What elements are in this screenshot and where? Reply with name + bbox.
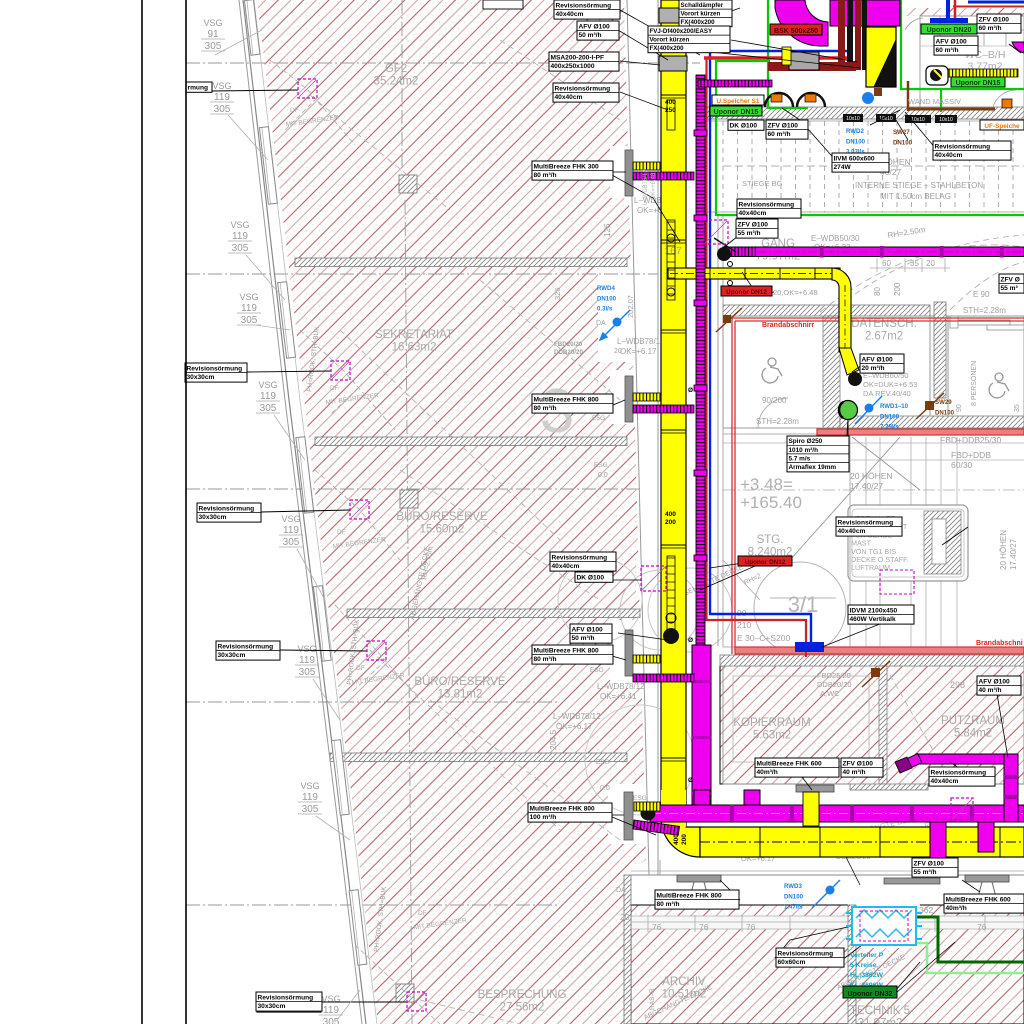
svg-text:DF: DF bbox=[356, 665, 365, 672]
svg-text:30x30cm: 30x30cm bbox=[218, 652, 246, 659]
svg-text:VSG: VSG bbox=[212, 81, 231, 91]
svg-text:119: 119 bbox=[260, 391, 276, 402]
svg-text:AFV Ø100: AFV Ø100 bbox=[936, 38, 967, 45]
svg-text:ESG: ESG bbox=[596, 759, 610, 766]
svg-text:80: 80 bbox=[873, 287, 882, 296]
svg-text:DA REV.40/40: DA REV.40/40 bbox=[863, 389, 911, 398]
svg-text:80 m³/h: 80 m³/h bbox=[534, 656, 557, 663]
svg-text:VSG: VSG bbox=[321, 994, 340, 1004]
svg-text:MIT 1.50cm BELAG: MIT 1.50cm BELAG bbox=[880, 192, 951, 201]
svg-text:MSA200-200-I-PF: MSA200-200-I-PF bbox=[551, 54, 605, 61]
svg-text:MultiBreeze FHK 600: MultiBreeze FHK 600 bbox=[946, 896, 1012, 903]
svg-text:OK=+6.17: OK=+6.17 bbox=[556, 722, 593, 731]
svg-text:305: 305 bbox=[232, 243, 249, 254]
svg-text:40x40cm: 40x40cm bbox=[931, 778, 959, 785]
svg-text:BSK 500x250: BSK 500x250 bbox=[774, 28, 818, 35]
svg-text:100 m³/h: 100 m³/h bbox=[530, 814, 557, 821]
svg-text:13.81m2: 13.81m2 bbox=[438, 689, 483, 701]
svg-text:ZFV Ø100: ZFV Ø100 bbox=[914, 860, 945, 867]
svg-text:DA: DA bbox=[596, 320, 606, 327]
svg-text:MultiBreeze FHK 800: MultiBreeze FHK 800 bbox=[530, 805, 596, 812]
svg-text:0.0: 0.0 bbox=[598, 472, 608, 479]
svg-text:VSG: VSG bbox=[258, 380, 277, 390]
svg-text:204.5: 204.5 bbox=[549, 729, 558, 750]
svg-text:+3.48=: +3.48= bbox=[740, 475, 793, 494]
svg-text:Revisionsörmung: Revisionsörmung bbox=[556, 2, 612, 9]
svg-text:Uponor DN15: Uponor DN15 bbox=[956, 80, 1001, 87]
svg-text:Revisionsörmung: Revisionsörmung bbox=[552, 554, 608, 561]
svg-text:STG.: STG. bbox=[757, 534, 784, 546]
svg-text:RWD2: RWD2 bbox=[846, 128, 864, 135]
svg-text:L–WDB78/12: L–WDB78/12 bbox=[617, 337, 665, 346]
svg-text:20 m³/h: 20 m³/h bbox=[862, 365, 885, 372]
svg-text:55 m³/h: 55 m³/h bbox=[738, 230, 761, 237]
svg-text:305: 305 bbox=[214, 104, 231, 115]
svg-text:60x60cm: 60x60cm bbox=[778, 959, 806, 966]
svg-text:20 HÖHEN: 20 HÖHEN bbox=[850, 471, 893, 481]
svg-text:ESG: ESG bbox=[590, 667, 604, 674]
svg-text:OK=+6.48: OK=+6.48 bbox=[651, 172, 657, 200]
svg-text:119: 119 bbox=[323, 1005, 339, 1016]
svg-text:305: 305 bbox=[283, 537, 300, 548]
svg-text:305: 305 bbox=[299, 667, 316, 678]
svg-text:VSG: VSG bbox=[300, 781, 319, 791]
svg-text:ARCHIV: ARCHIV bbox=[662, 976, 706, 988]
svg-text:35: 35 bbox=[910, 259, 919, 268]
svg-text:Uponor DN12: Uponor DN12 bbox=[745, 559, 786, 566]
svg-text:91: 91 bbox=[207, 29, 219, 40]
svg-text:60 m³/h: 60 m³/h bbox=[768, 131, 791, 138]
svg-text:60: 60 bbox=[882, 259, 891, 268]
svg-text:A,WC: A,WC bbox=[820, 689, 840, 698]
svg-text:119: 119 bbox=[283, 525, 299, 536]
svg-text:Vorort kürzen: Vorort kürzen bbox=[650, 36, 690, 43]
svg-text:119: 119 bbox=[302, 792, 318, 803]
svg-text:L–WDB76/12: L–WDB76/12 bbox=[643, 169, 649, 205]
svg-text:FVJ-Df400x200/EASY: FVJ-Df400x200/EASY bbox=[650, 28, 713, 35]
svg-text:RWD3: RWD3 bbox=[784, 883, 802, 890]
svg-text:80 m³/h: 80 m³/h bbox=[657, 901, 680, 908]
svg-text:E–WDB50/30: E–WDB50/30 bbox=[811, 234, 860, 243]
svg-text:274W: 274W bbox=[834, 164, 852, 171]
svg-text:305: 305 bbox=[260, 403, 277, 414]
svg-text:DF: DF bbox=[290, 107, 299, 114]
svg-text:STIEGE BG: STIEGE BG bbox=[742, 179, 783, 188]
svg-text:119: 119 bbox=[299, 655, 315, 666]
svg-text:DK Ø100: DK Ø100 bbox=[577, 574, 605, 581]
svg-text:FX(400x200: FX(400x200 bbox=[681, 19, 716, 26]
svg-text:55 m³/h: 55 m³/h bbox=[914, 869, 937, 876]
svg-text:STH=2.28m: STH=2.28m bbox=[756, 417, 799, 426]
svg-text:DN100: DN100 bbox=[893, 139, 913, 146]
svg-text:Revisionsörmung: Revisionsörmung bbox=[199, 505, 255, 512]
svg-text:298: 298 bbox=[950, 680, 965, 690]
svg-text:40x40cm: 40x40cm bbox=[556, 11, 584, 18]
svg-text:90: 90 bbox=[956, 404, 963, 412]
svg-text:35.24m2: 35.24m2 bbox=[374, 76, 419, 88]
svg-text:Revisionsörmung: Revisionsörmung bbox=[778, 950, 834, 957]
svg-text:SW29: SW29 bbox=[935, 399, 952, 406]
svg-text:Verteiler P: Verteiler P bbox=[850, 952, 884, 959]
svg-text:Uponor DN15: Uponor DN15 bbox=[714, 109, 759, 116]
svg-text:DN100: DN100 bbox=[597, 295, 617, 302]
svg-text:40x40cm: 40x40cm bbox=[739, 210, 767, 217]
svg-text:RAS–R: RAS–R bbox=[649, 988, 656, 1010]
svg-text:LÜFTRAUM: LÜFTRAUM bbox=[851, 563, 890, 572]
svg-text:55 m³: 55 m³ bbox=[1001, 285, 1019, 292]
svg-text:DATENSCH.: DATENSCH. bbox=[851, 318, 917, 330]
svg-text:DF: DF bbox=[330, 385, 339, 392]
svg-text:10x10: 10x10 bbox=[939, 117, 953, 123]
svg-text:210: 210 bbox=[737, 620, 751, 630]
svg-text:DF: DF bbox=[337, 529, 346, 536]
svg-text:Revisionsörmung: Revisionsörmung bbox=[218, 643, 274, 650]
svg-text:INTERNE STIEGE – STAHLBETON: INTERNE STIEGE – STAHLBETON bbox=[855, 181, 983, 190]
svg-text:ZFV Ø100: ZFV Ø100 bbox=[738, 221, 769, 228]
svg-text:IDVM 2100x450: IDVM 2100x450 bbox=[850, 607, 898, 614]
svg-text:20: 20 bbox=[926, 259, 935, 268]
svg-text:326: 326 bbox=[553, 287, 562, 300]
svg-text:DN100: DN100 bbox=[935, 409, 955, 416]
svg-text:DDB20/20: DDB20/20 bbox=[554, 349, 583, 356]
svg-text:400: 400 bbox=[665, 511, 676, 518]
svg-text:IIVM 600x600: IIVM 600x600 bbox=[834, 155, 875, 162]
svg-text:460W Vertikalk: 460W Vertikalk bbox=[850, 616, 897, 623]
svg-text:Revisionsörmung: Revisionsörmung bbox=[838, 519, 894, 526]
svg-text:OK=+6.41: OK=+6.41 bbox=[600, 692, 637, 701]
svg-text:VSG: VSG bbox=[281, 514, 300, 524]
svg-text:E 30–C+S200: E 30–C+S200 bbox=[737, 633, 790, 643]
svg-text:DN100: DN100 bbox=[784, 893, 804, 900]
svg-text:Uponor DN20: Uponor DN20 bbox=[927, 27, 972, 34]
svg-text:76: 76 bbox=[746, 922, 756, 932]
svg-text:HL:3862W: HL:3862W bbox=[850, 972, 883, 979]
svg-text:60 m³/h: 60 m³/h bbox=[979, 25, 1002, 32]
svg-text:AFV Ø100: AFV Ø100 bbox=[862, 356, 893, 363]
svg-text:rmung: rmung bbox=[188, 84, 209, 91]
svg-text:5 Kreise: 5 Kreise bbox=[850, 962, 877, 969]
svg-text:DDB20/20: DDB20/20 bbox=[817, 680, 852, 689]
svg-text:Revisionsörmung: Revisionsörmung bbox=[739, 201, 795, 208]
svg-text:0.3l/s: 0.3l/s bbox=[597, 306, 613, 313]
svg-text:Brandabschni: Brandabschni bbox=[976, 640, 1023, 647]
svg-text:80 m³/h: 80 m³/h bbox=[534, 172, 557, 179]
svg-text:DN100: DN100 bbox=[880, 413, 900, 420]
svg-text:305: 305 bbox=[323, 1017, 340, 1024]
svg-text:AFV Ø100: AFV Ø100 bbox=[572, 626, 603, 633]
svg-text:10x10: 10x10 bbox=[846, 116, 860, 122]
svg-text:Revisionsörmung: Revisionsörmung bbox=[555, 85, 611, 92]
svg-text:ZFV Ø100: ZFV Ø100 bbox=[979, 16, 1010, 23]
svg-text:305: 305 bbox=[302, 804, 319, 815]
svg-text:17.40/27: 17.40/27 bbox=[850, 481, 883, 491]
svg-text:40 m³/h: 40 m³/h bbox=[979, 687, 1002, 694]
svg-text:119: 119 bbox=[232, 231, 248, 242]
svg-text:TECHNIK 5: TECHNIK 5 bbox=[850, 1005, 910, 1017]
svg-text:17.40/27: 17.40/27 bbox=[1009, 538, 1018, 570]
svg-text:Uponor DN12: Uponor DN12 bbox=[726, 289, 767, 296]
svg-text:40x40cm: 40x40cm bbox=[838, 528, 866, 535]
svg-text:MultiBreeze FHK 800: MultiBreeze FHK 800 bbox=[534, 647, 600, 654]
svg-text:20,OK=+6.48: 20,OK=+6.48 bbox=[773, 288, 818, 297]
svg-text:KOPIERRAUM: KOPIERRAUM bbox=[733, 717, 810, 729]
svg-text:20: 20 bbox=[620, 912, 630, 922]
svg-text:STH=2.28m: STH=2.28m bbox=[963, 306, 1006, 315]
svg-text:UF-Speiche: UF-Speiche bbox=[984, 123, 1020, 130]
svg-text:E 90: E 90 bbox=[973, 290, 990, 299]
svg-text:DN100: DN100 bbox=[846, 138, 866, 145]
svg-text:30x30cm: 30x30cm bbox=[258, 1003, 286, 1010]
svg-text:35: 35 bbox=[1014, 404, 1021, 412]
svg-text:L–WDB78/12: L–WDB78/12 bbox=[553, 712, 601, 721]
svg-text:SW27: SW27 bbox=[893, 129, 910, 136]
svg-text:Revisionsörmung: Revisionsörmung bbox=[258, 994, 314, 1001]
svg-text:Revisionsörmung: Revisionsörmung bbox=[931, 769, 987, 776]
svg-text:119: 119 bbox=[214, 92, 230, 103]
svg-text:FBD20/20: FBD20/20 bbox=[554, 341, 583, 348]
svg-text:ESG: ESG bbox=[633, 795, 647, 802]
svg-text:60/30: 60/30 bbox=[951, 460, 973, 470]
svg-text:BESPRECHUNG: BESPRECHUNG bbox=[478, 989, 567, 1001]
svg-text:16.63m2: 16.63m2 bbox=[392, 342, 437, 354]
svg-text:2.67m2: 2.67m2 bbox=[865, 331, 903, 343]
svg-text:MultiBreeze FHK 800: MultiBreeze FHK 800 bbox=[534, 396, 600, 403]
svg-text:Revisionsörmung: Revisionsörmung bbox=[187, 365, 243, 372]
svg-text:90/200: 90/200 bbox=[762, 396, 787, 405]
svg-text:FBD25/20: FBD25/20 bbox=[817, 671, 851, 680]
svg-text:Brandabschnirr: Brandabschnirr bbox=[762, 322, 814, 329]
svg-text:BÜRO/RESERVE: BÜRO/RESERVE bbox=[396, 511, 488, 523]
svg-text:27.56m2: 27.56m2 bbox=[500, 1002, 545, 1014]
svg-text:OK=+6.17: OK=+6.17 bbox=[620, 347, 657, 356]
svg-text:5.63m2: 5.63m2 bbox=[753, 730, 791, 742]
svg-text:ESG: ESG bbox=[594, 462, 608, 469]
svg-text:20 HÖHEN: 20 HÖHEN bbox=[999, 530, 1008, 570]
svg-text:119: 119 bbox=[241, 303, 257, 314]
svg-text:MultiBreeze FHK 300: MultiBreeze FHK 300 bbox=[534, 163, 600, 170]
svg-text:MultiBreeze FHK 800: MultiBreeze FHK 800 bbox=[657, 892, 723, 899]
svg-text:PUTZRAUM: PUTZRAUM bbox=[941, 715, 1005, 727]
svg-text:VSG: VSG bbox=[203, 18, 222, 28]
svg-text:126: 126 bbox=[603, 223, 612, 237]
svg-text:40 m³/h: 40 m³/h bbox=[843, 769, 866, 776]
svg-text:RWD1–10: RWD1–10 bbox=[880, 403, 909, 410]
svg-text:50 m³/h: 50 m³/h bbox=[579, 32, 602, 39]
svg-text:7.29l/s: 7.29l/s bbox=[880, 424, 899, 431]
svg-text:VSG: VSG bbox=[239, 292, 258, 302]
svg-text:DF: DF bbox=[418, 910, 427, 917]
svg-text:ZFV Ø100: ZFV Ø100 bbox=[768, 122, 799, 129]
svg-text:400x250x1000: 400x250x1000 bbox=[551, 63, 595, 70]
svg-text:202.07: 202.07 bbox=[626, 295, 635, 318]
svg-text:305: 305 bbox=[241, 315, 258, 326]
svg-text:40x40cm: 40x40cm bbox=[555, 94, 583, 101]
svg-text:AFV Ø100: AFV Ø100 bbox=[979, 678, 1010, 685]
svg-text:76: 76 bbox=[699, 922, 709, 932]
svg-text:20: 20 bbox=[614, 348, 622, 355]
svg-text:200: 200 bbox=[681, 834, 688, 845]
svg-text:40m³/h: 40m³/h bbox=[757, 769, 778, 776]
svg-text:Spiro Ø250: Spiro Ø250 bbox=[789, 438, 823, 445]
svg-text:1010 m³/h: 1010 m³/h bbox=[789, 447, 819, 454]
svg-text:Uponor DN32: Uponor DN32 bbox=[848, 991, 893, 998]
svg-text:BÜRO/RESERVE: BÜRO/RESERVE bbox=[414, 676, 506, 688]
svg-text:U.Speicher S1: U.Speicher S1 bbox=[717, 98, 760, 105]
svg-text:WAND MASSIV: WAND MASSIV bbox=[908, 97, 961, 106]
svg-text:200: 200 bbox=[893, 282, 902, 296]
svg-text:DK Ø100: DK Ø100 bbox=[730, 122, 758, 129]
svg-text:8 PERSONEN: 8 PERSONEN bbox=[971, 361, 978, 406]
svg-text:Revisionsörmung: Revisionsörmung bbox=[935, 143, 991, 150]
svg-text:L–WDB78/12: L–WDB78/12 bbox=[597, 682, 645, 691]
svg-text:SEKRETARIAT: SEKRETARIAT bbox=[375, 329, 453, 341]
svg-text:OK=DUK=+6.53: OK=DUK=+6.53 bbox=[863, 380, 917, 389]
svg-text:30x30cm: 30x30cm bbox=[187, 374, 215, 381]
svg-text:Armaflex 19mm: Armaflex 19mm bbox=[789, 464, 837, 471]
svg-text:305: 305 bbox=[205, 41, 222, 52]
svg-text:E5G: E5G bbox=[592, 415, 605, 422]
svg-text:15.60m2: 15.60m2 bbox=[420, 524, 465, 536]
svg-text:RWD4: RWD4 bbox=[597, 285, 615, 292]
svg-text:80 m³/h: 80 m³/h bbox=[534, 405, 557, 412]
svg-text:AFV Ø100: AFV Ø100 bbox=[579, 23, 610, 30]
svg-text:1.47l/s: 1.47l/s bbox=[784, 904, 803, 911]
svg-text:GF2: GF2 bbox=[385, 63, 407, 75]
svg-text:60 m³/h: 60 m³/h bbox=[936, 47, 959, 54]
svg-text:DA: DA bbox=[616, 887, 626, 894]
svg-text:50 m³/h: 50 m³/h bbox=[572, 635, 595, 642]
svg-text:5.84m2: 5.84m2 bbox=[954, 728, 992, 740]
svg-text:Schalldämpfer: Schalldämpfer bbox=[681, 2, 724, 9]
svg-text:MultiBreeze FHK 600: MultiBreeze FHK 600 bbox=[757, 760, 823, 767]
svg-text:40x40cm: 40x40cm bbox=[935, 152, 963, 159]
svg-text:Vorort kürzen: Vorort kürzen bbox=[681, 10, 721, 17]
svg-text:200: 200 bbox=[665, 519, 676, 526]
svg-text:FX(400x200: FX(400x200 bbox=[650, 45, 685, 52]
svg-text:ZFV Ø: ZFV Ø bbox=[1001, 276, 1020, 283]
svg-text:FBD+DDB25/30: FBD+DDB25/30 bbox=[940, 435, 1001, 445]
svg-text:31.97m2: 31.97m2 bbox=[858, 1018, 903, 1024]
svg-text:76: 76 bbox=[652, 922, 662, 932]
svg-text:VSG: VSG bbox=[297, 644, 316, 654]
svg-text:5.7 m/s: 5.7 m/s bbox=[789, 455, 811, 462]
svg-text:VSG: VSG bbox=[230, 220, 249, 230]
svg-text:40x40cm: 40x40cm bbox=[552, 563, 580, 570]
svg-text:ZFV Ø100: ZFV Ø100 bbox=[843, 760, 874, 767]
svg-text:40m³/h: 40m³/h bbox=[946, 905, 967, 912]
svg-text:30x30cm: 30x30cm bbox=[199, 514, 227, 521]
svg-text:+165.40: +165.40 bbox=[740, 493, 802, 512]
svg-text:0.0: 0.0 bbox=[600, 785, 610, 792]
